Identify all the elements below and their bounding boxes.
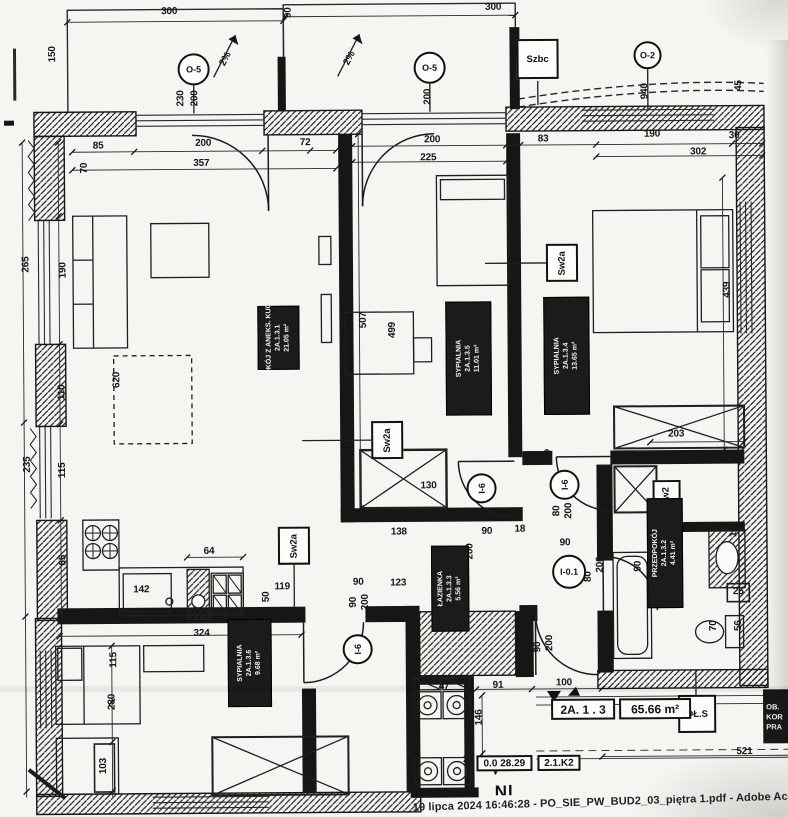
dimension-text: 90 <box>633 561 644 572</box>
tag-label: O-5 <box>186 64 201 74</box>
dimension-text: 507 <box>358 312 369 328</box>
dimension-text: 30 <box>729 130 740 141</box>
tag-label: Sw2a <box>382 428 393 452</box>
dimension-text: 200 <box>424 134 440 145</box>
edge-stamp-line: PRA <box>766 722 782 731</box>
tag-label: I-6 <box>559 480 569 491</box>
dimension-text: 200 <box>595 556 606 572</box>
dimension-text: 70 <box>708 620 719 631</box>
door-window-tag: O-2 <box>633 41 661 69</box>
dimension-text: 146 <box>474 709 485 725</box>
dimension-text: 47 <box>439 681 450 692</box>
room-label: ŁAZIENKA2A.1.3.35.56 m² <box>431 545 470 631</box>
elevation-marker: 0.0 28.29 2.1.K2 <box>476 755 580 772</box>
room-label: SYPIALNIA2A.1.3.413.65 m² <box>543 297 590 415</box>
door-window-tag: I-6 <box>343 634 373 664</box>
dimension-text: 324 <box>193 628 209 639</box>
tag-label: Sw2a <box>288 534 299 558</box>
dimension-text: 265 <box>20 256 31 272</box>
room-label-line: 9.68 m² <box>255 651 263 675</box>
dimension-text: 439 <box>722 282 733 298</box>
room-label-line: SYPIALNIA <box>554 337 562 374</box>
dimension-text: 90 <box>283 7 294 18</box>
dimension-text: 235 <box>22 456 33 472</box>
room-label: POKÓJ Z ANEKS. KUCH.2A.1.3.121.05 m² <box>257 306 299 370</box>
dimension-text: 200 <box>422 89 433 105</box>
dimension-text: 230 <box>106 694 117 710</box>
scanned-floorplan-page: 300903001502%2%2302002009404585200722520… <box>0 0 788 817</box>
dimension-text: 60 <box>539 447 554 462</box>
dimension-text: 50 <box>261 591 272 602</box>
annotation-overlay: 300903001502%2%2302002009404585200722520… <box>0 0 788 817</box>
dimension-text: 230 <box>175 90 186 106</box>
dimension-text: 2% <box>341 50 357 68</box>
room-label-text: ŁAZIENKA2A.1.3.35.56 m² <box>431 545 470 631</box>
tag-sw2a: Sw2a <box>546 244 578 282</box>
room-label-text: SYPIALNIA2A.1.3.511.01 m² <box>445 301 492 415</box>
section-tag-box: 2.1.K2 <box>537 755 581 771</box>
room-label-text: SYPIALNIA2A.1.3.69.68 m² <box>227 619 272 707</box>
dimension-text: 300 <box>161 6 177 17</box>
dimension-text: 190 <box>57 262 68 278</box>
room-label-line: 13.65 m² <box>572 342 580 370</box>
room-label: SYPIALNIA2A.1.3.511.01 m² <box>445 301 492 415</box>
dimension-text: 200 <box>189 90 200 106</box>
tag-label: I-0.1 <box>560 567 578 577</box>
room-label-line: 21.05 m² <box>283 324 291 352</box>
dimension-text: 115 <box>57 463 68 479</box>
room-label-line: SYPIALNIA <box>237 644 245 681</box>
dimension-text: 90 <box>560 537 571 548</box>
dimension-text: 302 <box>690 146 706 157</box>
dimension-text: 521 <box>736 746 752 757</box>
room-label-line: PRZEDPOKÓJ <box>652 529 660 577</box>
tag-label: O-5 <box>422 63 437 73</box>
dimension-text: 25 <box>733 586 744 597</box>
room-label-line: 2A.1.3.6 <box>246 650 254 677</box>
apartment-number: 2A. 1 . 3 <box>551 698 615 719</box>
dimension-text: 90 <box>532 642 543 653</box>
dimension-text: 91 <box>493 680 504 691</box>
dimension-text: 138 <box>391 526 407 537</box>
dimension-text: 85 <box>93 141 104 152</box>
room-label-line: 2A.1.3.4 <box>563 343 571 370</box>
floorplan: 300903001502%2%2302002009404585200722520… <box>0 0 788 817</box>
clipped-print-text: Nl <box>495 782 514 795</box>
door-window-tag: I-6 <box>549 470 579 500</box>
room-label-line: 5.56 m² <box>455 576 463 600</box>
dimension-text: 499 <box>387 322 398 338</box>
dimension-text: 45 <box>733 80 744 91</box>
dimension-text: 119 <box>274 581 290 592</box>
room-label-line: ŁAZIENKA <box>437 571 445 606</box>
tag-sw2a: Sw2a <box>278 527 310 565</box>
elevation-value-box: 0.0 28.29 <box>476 755 532 771</box>
dimension-text: 90 <box>348 597 359 608</box>
room-label-line: 2A.1.3.2 <box>661 540 669 567</box>
room-label-line: 2A.1.3.1 <box>274 325 282 352</box>
dimension-text: 115 <box>108 652 119 668</box>
dimension-text: 620 <box>111 372 122 388</box>
dimension-text: 20 <box>463 754 474 765</box>
tag-szbc: Szbc <box>516 39 558 79</box>
room-label-text: POKÓJ Z ANEKS. KUCH.2A.1.3.121.05 m² <box>257 306 299 370</box>
dimension-text: 142 <box>133 584 149 595</box>
room-label-text: PRZEDPOKÓJ2A.1.3.24.41 m² <box>647 498 684 608</box>
dimension-text: 18 <box>514 524 525 535</box>
dimension-text: 72 <box>300 137 311 148</box>
dimension-text: 18 <box>728 526 739 537</box>
room-label-text: SYPIALNIA2A.1.3.413.65 m² <box>543 297 590 415</box>
tag-label: Sw2a <box>556 251 567 275</box>
dimension-text: 130 <box>420 480 436 491</box>
dimension-text: 200 <box>563 503 574 519</box>
edge-stamp: OB. KOR PRA <box>763 689 788 743</box>
dimension-text: 940 <box>639 83 650 99</box>
dimension-text: 90 <box>353 577 364 588</box>
door-window-tag: I-0.1 <box>552 555 586 589</box>
dimension-text: 56 <box>733 620 744 631</box>
dimension-text: 203 <box>668 428 684 439</box>
dimension-text: 123 <box>390 577 406 588</box>
dimension-text: 300 <box>485 2 501 13</box>
room-label-line: 4.41 m² <box>670 541 678 565</box>
dimension-text: 200 <box>544 635 555 651</box>
dimension-text: 80 <box>551 505 562 516</box>
room-label: SYPIALNIA2A.1.3.69.68 m² <box>227 619 272 707</box>
edge-stamp-line: KOR <box>766 712 783 721</box>
door-window-tag: O-5 <box>414 52 446 84</box>
tag-label: O-2 <box>640 50 655 60</box>
tag-label: I-6 <box>477 483 487 494</box>
dimension-text: 2% <box>217 50 233 68</box>
edge-stamp-line: OB. <box>766 702 779 711</box>
door-window-tag: I-6 <box>466 473 496 503</box>
dimension-text: 357 <box>193 158 209 169</box>
tag-label: Szbc <box>526 53 548 64</box>
dimension-text: 100 <box>556 677 572 688</box>
dimension-text: 150 <box>47 46 58 62</box>
dimension-text: 103 <box>98 758 109 774</box>
dimension-text: 25 <box>338 139 349 150</box>
room-label-line: 11.01 m² <box>474 345 482 373</box>
dimension-text: 200 <box>195 138 211 149</box>
dimension-text: 110 <box>56 385 67 401</box>
room-label-line: 2A.1.3.5 <box>465 345 473 372</box>
dimension-text: 65 <box>58 555 69 566</box>
door-window-tag: O-5 <box>178 53 210 85</box>
dimension-text: 90 <box>481 526 492 537</box>
room-label-line: SYPIALNIA <box>456 340 464 377</box>
apartment-area: 65.66 m² <box>619 698 691 720</box>
tag-label: I-6 <box>353 644 363 655</box>
elevation-value: 28.29 <box>500 758 525 769</box>
room-label-line: 2A.1.3.3 <box>446 575 454 602</box>
room-label: PRZEDPOKÓJ2A.1.3.24.41 m² <box>647 498 684 608</box>
apartment-summary-tag: 2A. 1 . 3 65.66 m² <box>551 698 691 720</box>
room-label-line: POKÓJ Z ANEKS. KUCH. <box>265 296 274 379</box>
elevation-prefix: 0.0 <box>483 758 497 769</box>
dimension-text: 70 <box>79 163 90 174</box>
dimension-text: 200 <box>360 594 371 610</box>
dimension-text: 83 <box>538 133 549 144</box>
tag-sw2a: Sw2a <box>371 421 403 459</box>
dimension-text: 225 <box>420 152 436 163</box>
dimension-text: 64 <box>204 546 215 557</box>
dimension-text: 190 <box>644 129 660 140</box>
